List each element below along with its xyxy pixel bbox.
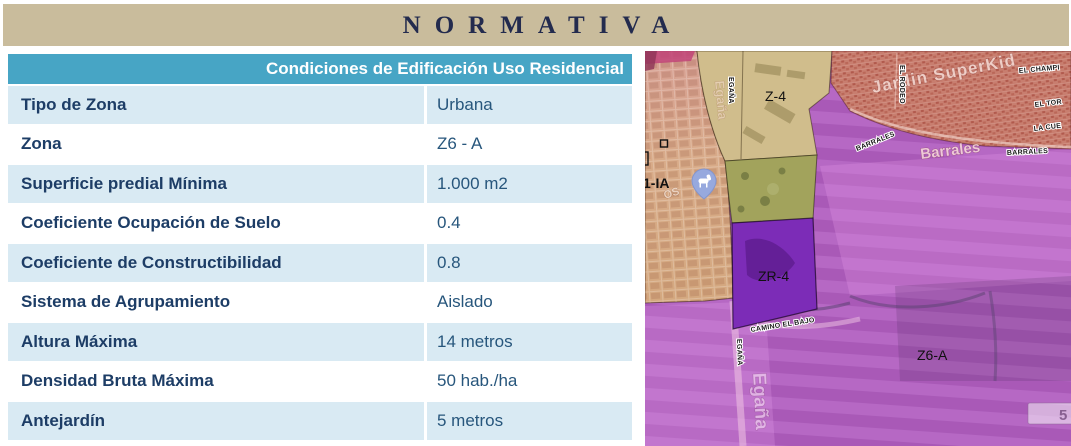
row-label: Superficie predial Mínima [8,165,424,203]
dark-field [895,276,1071,381]
row-label: Antejardín [8,402,424,440]
row-value: 1.000 m2 [427,165,632,203]
page-title: NORMATIVA [403,13,684,38]
table-row: Antejardín 5 metros [8,400,632,440]
street-label-egana-top: EGAÑA [727,77,736,104]
row-value: Urbana [427,86,632,124]
zone-label-z6a: Z6-A [917,347,948,363]
table-header: Condiciones de Edificación Uso Residenci… [8,54,632,84]
zoning-map: Egaña OS Jardin SuperKid Barrales Egaña … [645,51,1071,446]
table-row: Sistema de Agrupamiento Aislado [8,282,632,322]
row-value: 0.4 [427,205,632,243]
table-row: Coeficiente de Constructibilidad 0.8 [8,242,632,282]
row-value: 5 metros [427,402,632,440]
road-shield: 5 [1028,403,1071,424]
row-value: 14 metros [427,323,632,361]
zoning-map-image: Egaña OS Jardin SuperKid Barrales Egaña … [645,51,1071,446]
row-label: Densidad Bruta Máxima [8,363,424,401]
table-row: Superficie predial Mínima 1.000 m2 [8,163,632,203]
table-row: Zona Z6 - A [8,124,632,164]
row-label: Zona [8,126,424,164]
street-label-egana-big: Egaña [748,372,772,430]
table-row: Coeficiente Ocupación de Suelo 0.4 [8,203,632,243]
row-label: Coeficiente Ocupación de Suelo [8,205,424,243]
normativa-banner: NORMATIVA [3,4,1069,46]
light-field [820,149,1071,296]
table-row: Tipo de Zona Urbana [8,84,632,124]
zone-label-zr4: ZR-4 [758,268,789,284]
table-row: Altura Máxima 14 metros [8,321,632,361]
regulations-table: Condiciones de Edificación Uso Residenci… [8,54,632,440]
road-shield-number: 5 [1059,407,1067,424]
zone-label-z1ia: 1-IA [645,175,669,191]
row-label: Altura Máxima [8,323,424,361]
street-label-el-rodeo: EL RODEO [898,65,905,104]
row-value: Z6 - A [427,126,632,164]
row-label: Tipo de Zona [8,86,424,124]
table-row: Densidad Bruta Máxima 50 hab./ha [8,361,632,401]
zone-label-z4: Z-4 [765,88,786,104]
row-value: 0.8 [427,244,632,282]
row-value: 50 hab./ha [427,363,632,401]
row-value: Aislado [427,284,632,322]
row-label: Sistema de Agrupamiento [8,284,424,322]
row-label: Coeficiente de Constructibilidad [8,244,424,282]
